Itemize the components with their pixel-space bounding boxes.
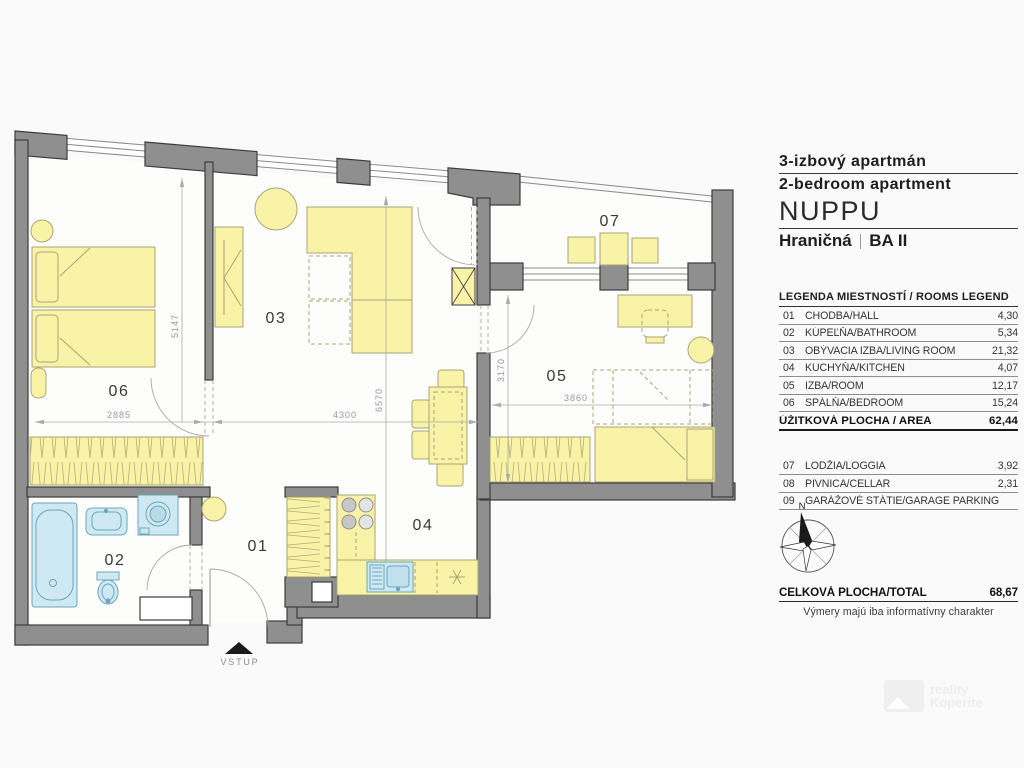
apartment-type-en: 2-bedroom apartment <box>779 175 1018 195</box>
watermark: reality Koperite <box>884 680 983 712</box>
nightstand <box>31 368 46 398</box>
rooms-legend: LEGENDA MIESTNOSTÍ / ROOMS LEGEND 01 CHO… <box>779 291 1018 618</box>
chair-left-1 <box>412 400 430 428</box>
loggia-table <box>600 233 628 265</box>
loggia-chair-1 <box>568 237 595 263</box>
divider <box>779 228 1018 229</box>
dim-3860: 3860 <box>564 393 588 403</box>
stool <box>688 337 714 363</box>
loggia-furniture <box>568 233 658 265</box>
entrance-marker: VSTUP <box>220 642 259 667</box>
info-panel: 3-izbový apartmán 2-bedroom apartment NU… <box>779 152 1018 618</box>
entrance-label: VSTUP <box>220 657 259 667</box>
kitchen-sink <box>367 562 413 592</box>
legend-row: 03 OBÝVACIA IZBA/LIVING ROOM 21,32 <box>779 342 1018 360</box>
separator-bar <box>860 234 862 249</box>
wardrobe-03 <box>215 227 243 327</box>
entry-cabinet <box>140 597 192 620</box>
legend-title: LEGENDA MIESTNOSTÍ / ROOMS LEGEND <box>779 291 1018 307</box>
chair-top <box>438 370 464 388</box>
label-room-07: 07 <box>600 213 621 230</box>
legend-row: 04 KUCHYŇA/KITCHEN 4,07 <box>779 360 1018 378</box>
watermark-logo-icon <box>884 680 924 712</box>
legend-row: 02 KÚPEĽŇA/BATHROOM 5,34 <box>779 325 1018 343</box>
label-room-02: 02 <box>105 552 126 569</box>
label-room-05: 05 <box>547 368 568 385</box>
washing-machine <box>138 495 178 535</box>
dim-3170: 3170 <box>496 358 506 382</box>
total-area: CELKOVÁ PLOCHA/TOTAL 68,67 Výmery majú i… <box>779 583 1018 618</box>
apartment-type-sk: 3-izbový apartmán <box>779 152 1018 172</box>
dining-table <box>429 387 467 464</box>
disclaimer-note: Výmery majú iba informatívny charakter <box>779 606 1018 618</box>
shaft <box>452 268 475 305</box>
chair-left-2 <box>412 431 430 459</box>
city-name: BA II <box>869 230 907 252</box>
legend-row: 08 PIVNICA/CELLAR 2,31 <box>779 475 1018 493</box>
desk <box>618 295 692 327</box>
legend-row: 06 SPÁLŇA/BEDROOM 15,24 <box>779 395 1018 413</box>
legend-extras: 07 LODŽIA/LOGGIA 3,92 08 PIVNICA/CELLAR … <box>779 458 1018 511</box>
loggia-chair-2 <box>632 238 658 263</box>
label-room-04: 04 <box>413 517 434 534</box>
bed-05-pillow <box>687 429 713 480</box>
hall-shaft <box>312 582 332 602</box>
bed-2-pillow <box>36 315 58 362</box>
dim-2885: 2885 <box>107 410 131 420</box>
legend-row: 01 CHODBA/HALL 4,30 <box>779 307 1018 325</box>
label-room-01: 01 <box>248 538 269 555</box>
label-room-06: 06 <box>109 383 130 400</box>
watermark-text: reality Koperite <box>930 683 983 709</box>
dim-4300: 4300 <box>333 410 357 420</box>
dim-6570: 6570 <box>374 388 384 412</box>
pouf <box>202 497 226 521</box>
street-name: Hraničná <box>779 230 852 252</box>
bedside-table <box>31 220 53 242</box>
bed-1-pillow <box>36 252 58 302</box>
project-name: NUPPU <box>779 196 1018 227</box>
chair-bottom <box>437 463 463 486</box>
label-room-03: 03 <box>266 310 287 327</box>
round-rug <box>255 188 297 230</box>
bathtub <box>32 503 77 607</box>
location-line: Hraničná BA II <box>779 230 1018 252</box>
toilet <box>97 572 119 604</box>
dim-5147: 5147 <box>170 314 180 338</box>
legend-row: 05 IZBA/ROOM 12,17 <box>779 377 1018 395</box>
divider <box>779 173 1018 174</box>
legend-row: 07 LODŽIA/LOGGIA 3,92 <box>779 458 1018 476</box>
legend-row: 09 GARÁŽOVÉ STÁTIE/GARAGE PARKING <box>779 493 1018 511</box>
usable-area-row: ÚŽITKOVÁ PLOCHA / AREA 62,44 <box>779 412 1018 431</box>
